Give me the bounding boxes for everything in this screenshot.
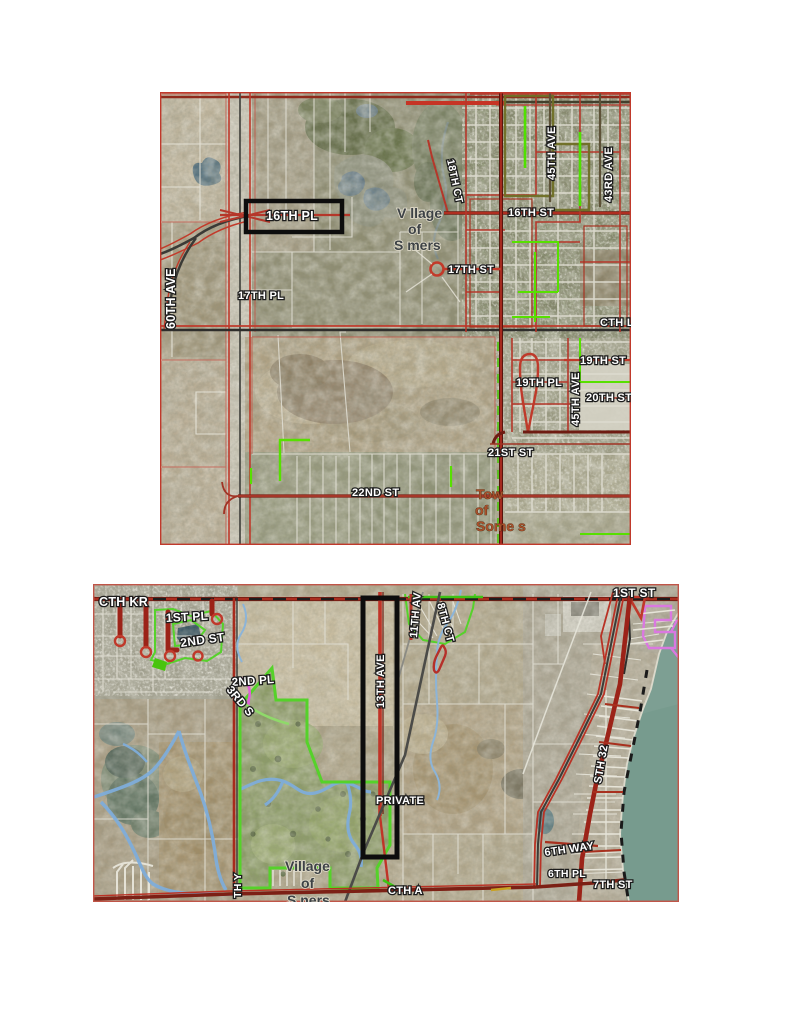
svg-text:PRIVATE: PRIVATE (376, 795, 424, 807)
svg-text:16TH ST: 16TH ST (508, 207, 554, 219)
svg-text:CTH A: CTH A (388, 885, 423, 897)
svg-text:CTH L: CTH L (600, 317, 631, 329)
svg-text:22ND ST: 22ND ST (352, 487, 399, 499)
svg-text:of: of (408, 221, 422, 237)
svg-text:45TH AVE: 45TH AVE (570, 372, 582, 426)
svg-text:43RD AVE: 43RD AVE (603, 147, 615, 202)
svg-text:6TH PL: 6TH PL (548, 868, 586, 880)
svg-text:Some s: Some s (476, 518, 526, 534)
svg-text:19TH ST: 19TH ST (580, 355, 626, 367)
svg-text:V llage: V llage (397, 205, 442, 221)
svg-text:7TH ST: 7TH ST (593, 879, 633, 891)
svg-text:of: of (301, 875, 315, 891)
svg-text:17TH ST: 17TH ST (448, 264, 494, 276)
svg-text:Village: Village (285, 858, 330, 874)
svg-text:45TH AVE: 45TH AVE (546, 126, 558, 180)
svg-text:S ners: S ners (287, 892, 330, 902)
svg-text:13TH AVE: 13TH AVE (375, 654, 387, 708)
svg-text:21ST ST: 21ST ST (488, 447, 534, 459)
svg-text:60TH AVE: 60TH AVE (164, 268, 178, 329)
svg-text:16TH PL: 16TH PL (266, 209, 318, 223)
svg-text:17TH PL: 17TH PL (238, 290, 284, 302)
svg-text:1ST PL: 1ST PL (165, 609, 208, 625)
svg-text:1ST ST: 1ST ST (613, 586, 656, 600)
svg-text:19TH PL: 19TH PL (516, 377, 562, 389)
svg-text:CTH KR: CTH KR (99, 595, 148, 609)
svg-text:of: of (475, 502, 489, 518)
svg-text:TH Y: TH Y (232, 873, 244, 898)
svg-text:Tow: Tow (476, 486, 503, 502)
svg-text:S mers: S mers (394, 237, 441, 253)
svg-text:20TH ST: 20TH ST (586, 392, 631, 404)
